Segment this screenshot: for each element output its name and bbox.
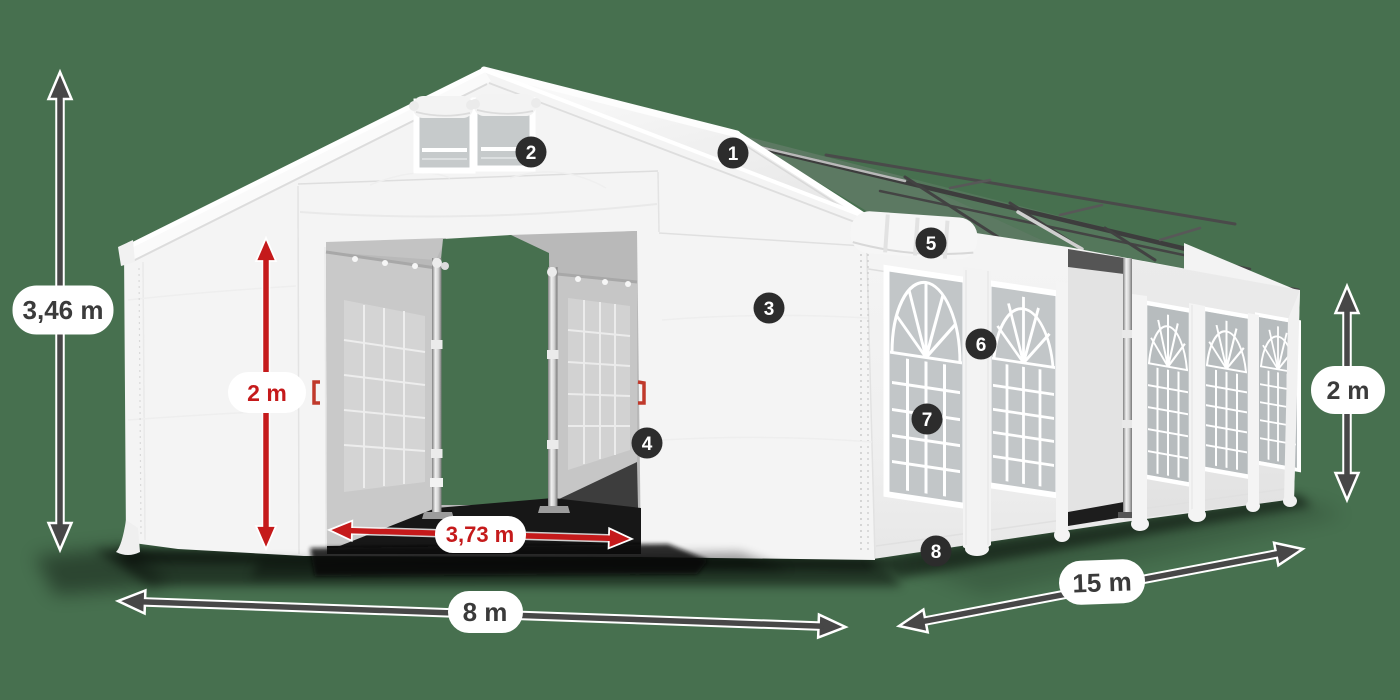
svg-text:2 m: 2 m <box>1326 377 1369 405</box>
svg-text:5: 5 <box>926 234 937 255</box>
svg-text:2: 2 <box>526 143 537 164</box>
svg-text:15 m: 15 m <box>1072 566 1132 598</box>
svg-text:8: 8 <box>931 542 942 563</box>
svg-text:1: 1 <box>728 144 739 165</box>
svg-text:3,73 m: 3,73 m <box>446 522 515 547</box>
svg-text:2 m: 2 m <box>247 380 287 406</box>
svg-text:3: 3 <box>764 299 775 320</box>
svg-text:4: 4 <box>642 434 653 455</box>
svg-text:3,46 m: 3,46 m <box>23 295 104 325</box>
svg-text:8 m: 8 m <box>463 597 508 627</box>
svg-text:6: 6 <box>976 335 987 356</box>
svg-text:7: 7 <box>922 410 933 431</box>
